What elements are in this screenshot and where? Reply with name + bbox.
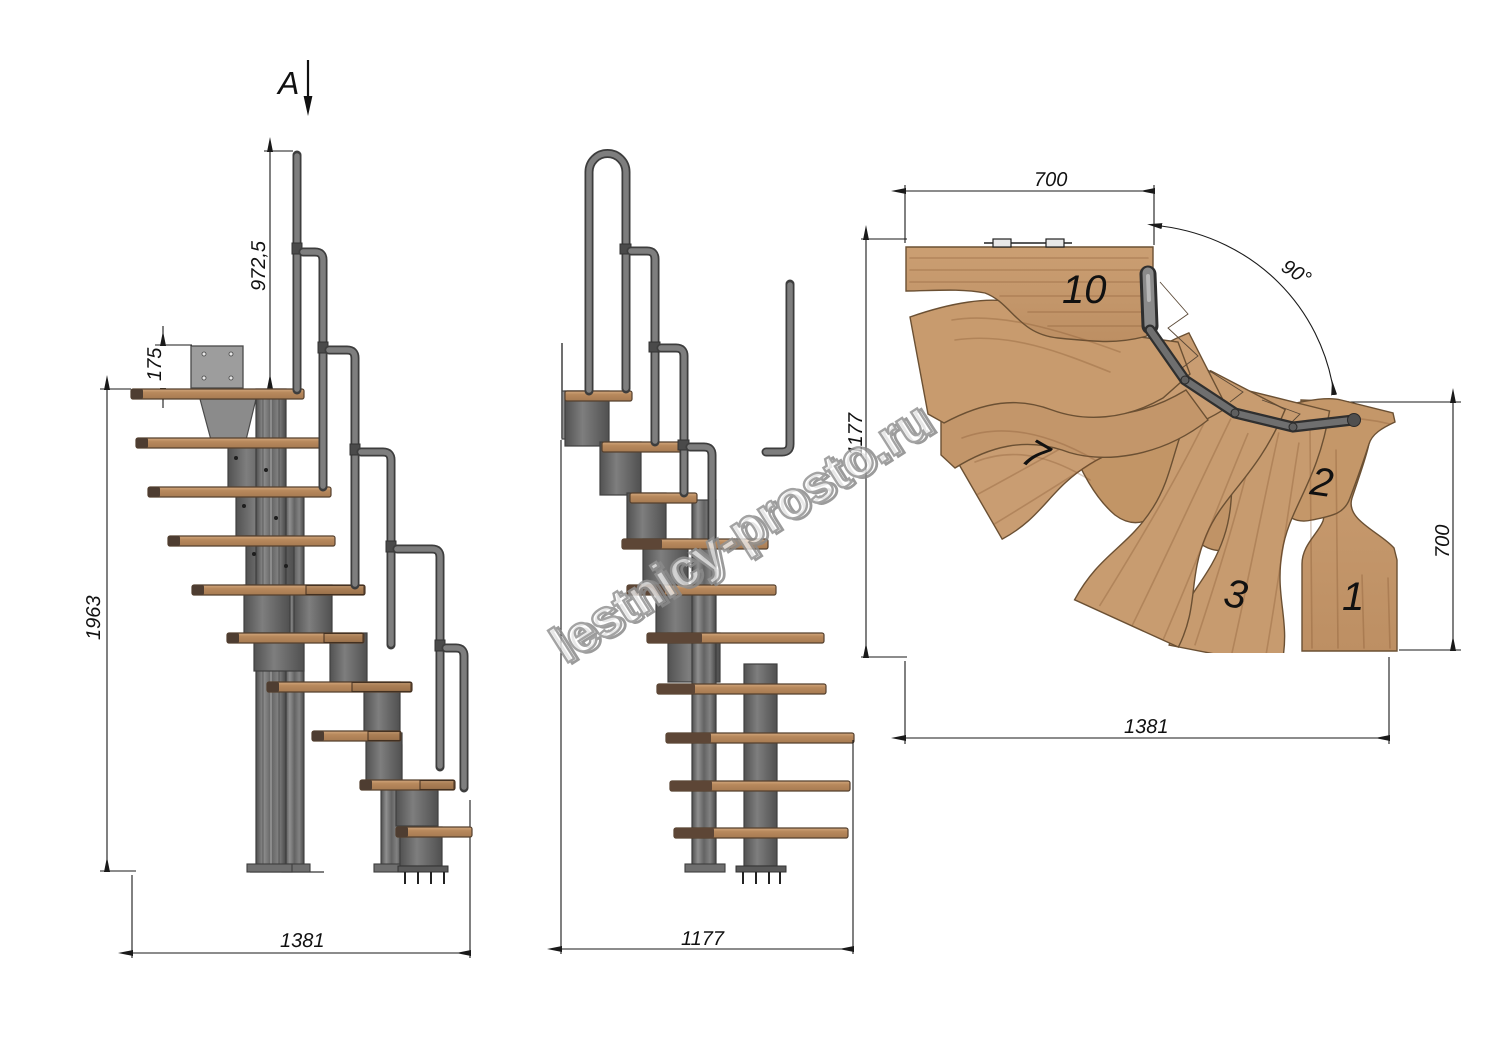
svg-text:1963: 1963	[83, 596, 105, 641]
svg-text:1381: 1381	[1124, 716, 1169, 738]
svg-text:10: 10	[1062, 268, 1107, 312]
svg-text:A: A	[276, 65, 299, 101]
svg-text:1381: 1381	[280, 930, 325, 952]
svg-text:1177: 1177	[681, 928, 725, 950]
svg-text:1: 1	[1342, 575, 1364, 619]
svg-text:700: 700	[1034, 169, 1067, 191]
svg-text:175: 175	[144, 347, 166, 381]
svg-text:700: 700	[1432, 525, 1454, 558]
svg-text:972,5: 972,5	[248, 240, 270, 291]
